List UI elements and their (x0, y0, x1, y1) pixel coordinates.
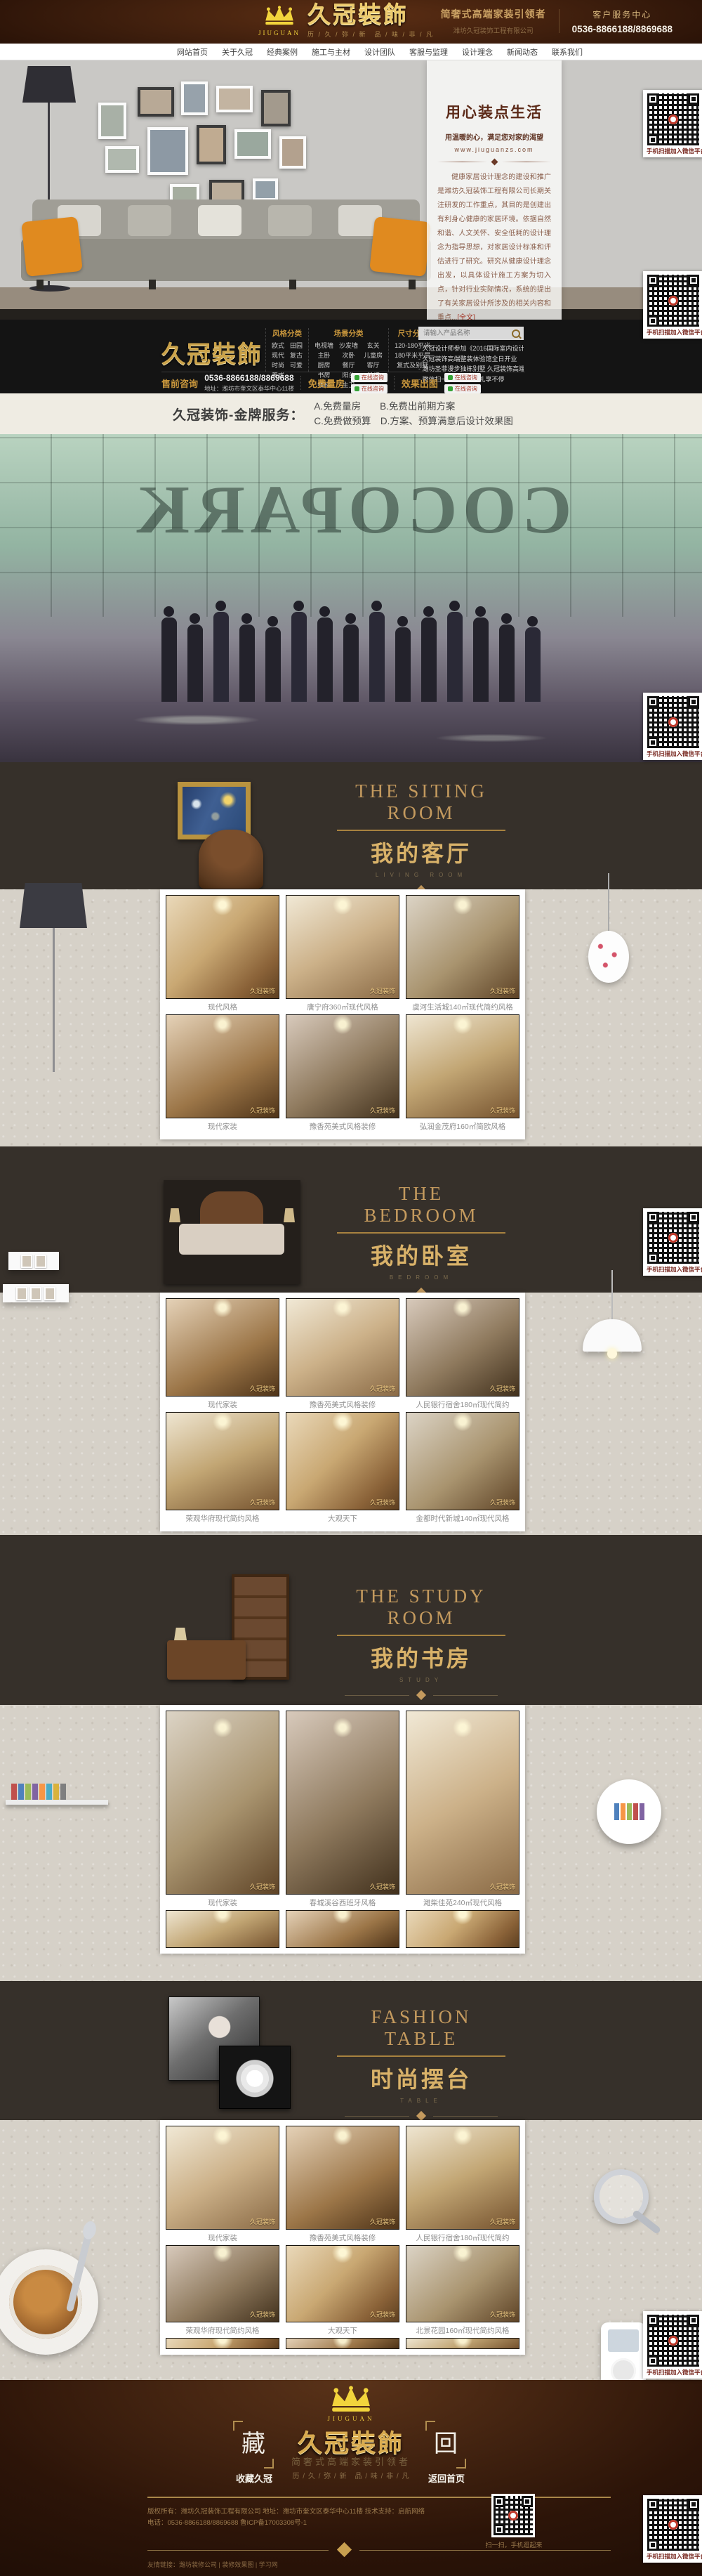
scene-link[interactable]: 次卧 (339, 351, 358, 360)
footer-slogan: 简奢式高端家装引领者 (267, 2454, 435, 2468)
gallery-photo[interactable]: 久冠装饰 (166, 2245, 279, 2322)
news-item[interactable]: 久冠设计师参加《2016国际室内设计趋势解析》 (418, 344, 524, 354)
gallery-photo[interactable]: 久冠装饰 (166, 2126, 279, 2230)
phone-address: 0536-8866188/8869688 地址：潍坊市奎文区泰华中心11楼 (204, 373, 294, 393)
qr-code (647, 275, 699, 327)
footer-brand-en: JIUGUAN (302, 2415, 400, 2422)
photo-caption: 荣观华府现代简约风格 (166, 2325, 279, 2336)
site-header: JIUGUAN 久冠裝飾 历 / 久 / 弥 / 新 品 / 味 / 非 / 凡… (0, 0, 702, 44)
fashion-title-zh: 时尚摆台 (317, 2062, 525, 2094)
photo-caption: 现代家装 (166, 1897, 279, 1908)
chat-icon (448, 386, 453, 391)
gallery-photo[interactable]: 久冠装饰 (166, 1014, 279, 1118)
study-title-en: THE STUDYROOM (317, 1586, 525, 1629)
service-phone: 0536-8866188/8869688 (572, 24, 673, 34)
section-fashion-table: FASHIONTABLE 时尚摆台 TABLE 久冠装饰 久冠装饰 久冠装饰 现… (0, 1981, 702, 2380)
style-link[interactable]: 复古 (290, 351, 303, 360)
collect-seal[interactable]: 藏 (237, 2424, 270, 2466)
footer-qr-caption: 扫一扫，手机逛起来 (466, 2540, 562, 2549)
qr-code (647, 2315, 699, 2367)
nav-item-construction[interactable]: 施工与主材 (305, 46, 357, 58)
photo-caption: 荣观华府现代简约风格 (166, 1513, 279, 1524)
contact-address: 地址：潍坊市奎文区泰华中心11楼 (204, 384, 294, 393)
brand-tagline: 历 / 久 / 弥 / 新 品 / 味 / 非 / 凡 (307, 30, 434, 39)
gallery-photo[interactable]: 久冠装饰 (406, 895, 519, 999)
footer-divider (147, 2497, 611, 2498)
gallery-photo[interactable]: 久冠装饰 (286, 1014, 399, 1118)
collect-button[interactable]: 收藏久冠 (222, 2471, 286, 2485)
gallery-photo[interactable]: 久冠装饰 (166, 1298, 279, 1397)
photo-frame (279, 136, 306, 169)
wechat-qr-widget: 手机扫描加入微信平台 (643, 693, 702, 760)
category-scene: 场景分类 电视墙 沙发墙 玄关 主卧 次卧 儿童房 厨房 餐厅 客厅 书房 阳台… (308, 328, 388, 372)
friend-links[interactable]: 友情链接：潍坊装修公司 | 装修效果图 | 学习网 (147, 2560, 278, 2569)
nav-item-concept[interactable]: 设计理念 (455, 46, 500, 58)
bedroom-title-zh: 我的卧室 (317, 1238, 525, 1271)
wechat-qr-widget: 手机扫描加入微信平台 (643, 2311, 702, 2379)
hero-banner: 用心装点生活 用温暖的心，满足您对家的渴望 www.jiuguanzs.com … (0, 60, 702, 320)
gallery-photo[interactable]: 久冠装饰 (406, 1014, 519, 1118)
photo-caption: 北景花园160㎡现代简约风格 (406, 2325, 519, 2336)
fashion-subtitle: TABLE (317, 2098, 525, 2104)
style-link[interactable]: 可爱 (290, 360, 303, 370)
gallery-photo[interactable]: 久冠装饰 (166, 1412, 279, 1510)
header-company: 潍坊久冠装饰工程有限公司 (441, 25, 546, 35)
read-more-link[interactable]: [全文] (457, 314, 475, 320)
hero-divider (437, 159, 551, 164)
wechat-qr-widget: 手机扫描加入微信平台 (643, 90, 702, 157)
scene-link[interactable]: 电视墙 (314, 341, 333, 350)
product-search (418, 327, 524, 340)
living-title-zh: 我的客厅 (317, 836, 525, 868)
gallery-photo[interactable]: 久冠装饰 (406, 1412, 519, 1510)
gallery-photo[interactable] (166, 2338, 279, 2349)
scene-link[interactable]: 儿童房 (364, 351, 383, 360)
plaza-ground (0, 702, 702, 762)
contact-logo: 久冠裝飾 (161, 335, 263, 370)
gallery-photo[interactable]: 久冠装饰 (286, 1412, 399, 1510)
photo-frame (147, 127, 188, 175)
render-output-label: 效果出图 (402, 377, 438, 390)
photo-caption: 唐宁府360㎡现代风格 (286, 1002, 399, 1012)
wechat-qr-widget: 手机扫描加入微信平台 (643, 2495, 702, 2563)
qr-code (647, 1212, 699, 1264)
footer-ornament-line (147, 2550, 329, 2551)
gallery-photo[interactable] (286, 2338, 399, 2349)
brand-logo[interactable]: JIUGUAN 久冠裝飾 历 / 久 / 弥 / 新 品 / 味 / 非 / 凡 (258, 4, 434, 39)
pendant-lamp-decor (588, 873, 629, 983)
chat-icon (355, 386, 359, 391)
nav-item-contact[interactable]: 联系我们 (545, 46, 590, 58)
search-input[interactable] (422, 329, 509, 338)
bedroom-subtitle: BEDROOM (317, 1274, 525, 1281)
footer-qr-code (491, 2494, 535, 2537)
scene-link[interactable]: 餐厅 (339, 360, 358, 370)
gallery-photo[interactable]: 久冠装饰 (286, 2245, 399, 2322)
style-link[interactable]: 现代 (272, 351, 284, 360)
nav-item-designers[interactable]: 设计团队 (357, 46, 402, 58)
category-columns: 风格分类 欧式 田园 现代 复古 时尚 可爱 美式 场景分类 电视墙 沙发墙 玄… (265, 328, 436, 372)
photo-frame (216, 86, 253, 112)
footer-diamond-icon (337, 2542, 352, 2557)
service-center-block: 客户服务中心 0536-8866188/8869688 (572, 8, 673, 34)
photo-caption: 人民银行宿舍180㎡现代简约 (406, 2232, 519, 2243)
wechat-qr-widget: 手机扫描加入微信平台 (643, 271, 702, 339)
photo-frame (197, 125, 226, 164)
photo-caption: 豫香苑美式风格装修 (286, 2232, 399, 2243)
photo-caption: 大观天下 (286, 2325, 399, 2336)
scene-link[interactable]: 厨房 (314, 360, 333, 370)
gallery-photo[interactable]: 久冠装饰 (286, 1298, 399, 1397)
floor-lamp-decor (20, 883, 87, 1072)
gallery-photo[interactable]: 久冠装饰 (406, 2245, 519, 2322)
qr-code (647, 93, 699, 145)
scene-link[interactable]: 主卧 (314, 351, 333, 360)
desk-decor (167, 1640, 246, 1680)
online-consult-button[interactable]: 在线咨询 (444, 373, 481, 382)
team-members (0, 612, 702, 710)
photo-frame (98, 103, 126, 139)
gallery-photo[interactable]: 久冠装饰 (406, 2126, 519, 2230)
search-icon[interactable] (512, 329, 520, 338)
hero-subtitle: 用温暖的心，满足您对家的渴望 (437, 131, 551, 142)
brand-name-zh: 久冠裝飾 (307, 4, 434, 27)
chat-icon (448, 375, 453, 380)
gallery-photo[interactable]: 久冠装饰 (166, 1711, 279, 1895)
study-header-band: THE STUDYROOM 我的书房 STUDY (0, 1535, 702, 1705)
qr-code (647, 696, 699, 748)
photo-caption: 潍柴佳苑240㎡现代风格 (406, 1897, 519, 1908)
photo-caption: 虞河生活城140㎡现代简约风格 (406, 1002, 519, 1012)
main-nav: 网站首页 关于久冠 经典案例 施工与主材 设计团队 客服与监理 设计理念 新闻动… (0, 44, 702, 60)
nav-item-about[interactable]: 关于久冠 (215, 46, 260, 58)
photo-caption: 豫香苑美式风格装修 (286, 1121, 399, 1132)
gallery-photo[interactable] (406, 2338, 519, 2349)
back-home-seal[interactable]: 回 (430, 2424, 462, 2466)
ornament-divider (317, 2112, 525, 2119)
book-shelf-decor (6, 1774, 108, 1805)
coffee-cup-decor (0, 2249, 98, 2355)
gallery-photo[interactable] (166, 1910, 279, 1948)
bedroom-title-en: THEBEDROOM (317, 1183, 525, 1227)
header-slogan: 简奢式高端家装引领者 (441, 7, 546, 21)
style-link[interactable]: 欧式 (272, 341, 284, 350)
hero-title: 用心装点生活 (437, 101, 551, 122)
fashion-title-en: FASHIONTABLE (317, 2006, 525, 2050)
section-bedroom: THEBEDROOM 我的卧室 BEDROOM 久冠装饰 久冠装饰 久冠装饰 现… (0, 1146, 702, 1535)
photo-frame (105, 146, 139, 173)
back-home-button[interactable]: 返回首页 (414, 2471, 479, 2485)
living-header-band: THE SITINGROOM 我的客厅 LIVING ROOM (0, 762, 702, 889)
wall-shelf-decor (8, 1252, 59, 1270)
hero-floor-shadow (0, 309, 702, 320)
copyright-line-1: 版权所有：潍坊久冠装饰工程有限公司 地址：潍坊市奎文区泰华中心11楼 技术支持：… (147, 2506, 425, 2518)
study-title-zh: 我的书房 (317, 1641, 525, 1673)
qr-code (647, 2499, 699, 2551)
photo-frame (181, 81, 208, 115)
gallery-photo[interactable]: 久冠装饰 (286, 895, 399, 999)
gallery-photo[interactable] (406, 1910, 519, 1948)
floor-lamp-shade (22, 66, 76, 103)
header-divider (559, 9, 559, 33)
photo-frame (261, 90, 291, 126)
nav-item-news[interactable]: 新闻动态 (500, 46, 545, 58)
brand-name-en: JIUGUAN (258, 30, 300, 37)
magnifier-decor (594, 2169, 663, 2225)
hero-overlay-panel: 用心装点生活 用温暖的心，满足您对家的渴望 www.jiuguanzs.com … (427, 60, 562, 320)
team-photo: COCOPARK (0, 434, 702, 762)
section-living-room: THE SITINGROOM 我的客厅 LIVING ROOM 久冠装饰 久冠装… (0, 762, 702, 1146)
bed-decor (164, 1180, 300, 1284)
service-center-label: 客户服务中心 (572, 8, 673, 20)
gold-service-bar: 久冠装饰-金牌服务： A.免费量房 B.免费出前期方案 C.免费做预算 D.方案… (0, 393, 702, 434)
nav-item-supervision[interactable]: 客服与监理 (402, 46, 455, 58)
wechat-qr-widget: 手机扫描加入微信平台 (643, 1208, 702, 1276)
online-consult-button[interactable]: 在线咨询 (351, 384, 388, 393)
photo-caption: 人民银行宿舍180㎡现代简约 (406, 1399, 519, 1410)
online-consult-button[interactable]: 在线咨询 (444, 384, 481, 393)
gallery-photo[interactable] (286, 1910, 399, 1948)
photo-frame (138, 87, 174, 117)
hero-website: www.jiuguanzs.com (437, 146, 551, 153)
category-style: 风格分类 欧式 田园 现代 复古 时尚 可爱 美式 (265, 328, 308, 372)
gallery-photo[interactable]: 久冠装饰 (286, 2126, 399, 2230)
style-link[interactable]: 时尚 (272, 360, 284, 370)
page: JIUGUAN 久冠裝飾 历 / 久 / 弥 / 新 品 / 味 / 非 / 凡… (0, 0, 702, 2576)
header-slogan-block: 简奢式高端家装引领者 潍坊久冠装饰工程有限公司 (441, 7, 546, 35)
photo-caption: 现代家装 (166, 2232, 279, 2243)
rose-photo-decor (219, 2046, 291, 2109)
free-measure-label: 免费量房 (308, 377, 345, 390)
photo-caption: 弘润金茂府160㎡简欧风格 (406, 1121, 519, 1132)
copyright-line-2: 电话：0536-8866188/8869688 鲁ICP备17003308号-1 (147, 2518, 425, 2529)
photo-caption: 现代风格 (166, 1002, 279, 1012)
scene-link[interactable]: 客厅 (364, 360, 383, 370)
photo-frame (253, 178, 278, 201)
chat-icon (355, 375, 359, 380)
news-item[interactable]: 久冠装饰高端整装体验馆全日开业 (418, 354, 524, 365)
contact-bottom-strip: 售前咨询 0536-8866188/8869688 地址：潍坊市奎文区泰华中心1… (161, 372, 525, 393)
photo-caption: 现代家装 (166, 1399, 279, 1410)
scene-link[interactable]: 玄关 (364, 341, 383, 350)
living-title-en: THE SITINGROOM (317, 780, 525, 824)
wall-shelf-decor (3, 1284, 69, 1302)
contact-bar: 久冠裝飾 风格分类 欧式 田园 现代 复古 时尚 可爱 美式 场景分类 电视墙 … (0, 320, 702, 393)
fashion-header-band: FASHIONTABLE 时尚摆台 TABLE (0, 1981, 702, 2120)
hero-paragraph: 健康家居设计理念的建设和推广是潍坊久冠装饰工程有限公司长期关注研发的工作重点，其… (437, 171, 551, 320)
gallery-photo[interactable]: 久冠装饰 (166, 895, 279, 999)
gallery-photo[interactable]: 久冠装饰 (406, 1298, 519, 1397)
section-study-room: THE STUDYROOM 我的书房 STUDY 久冠装饰 久冠装饰 久冠装饰 … (0, 1535, 702, 1981)
ornament-divider (317, 1692, 525, 1699)
photo-caption: 春城溪谷西班牙风格 (286, 1897, 399, 1908)
gallery-photo[interactable]: 久冠装饰 (286, 1711, 399, 1895)
style-link[interactable]: 田园 (290, 341, 303, 350)
nav-item-home[interactable]: 网站首页 (170, 46, 215, 58)
cocopark-sign: COCOPARK (0, 471, 702, 549)
living-subtitle: LIVING ROOM (317, 872, 525, 878)
presale-label: 售前咨询 (161, 377, 198, 390)
contact-phone: 0536-8866188/8869688 (204, 373, 294, 383)
site-footer: JIUGUAN 久冠裝飾 简奢式高端家装引领者 历 / 久 / 弥 / 新 品 … (0, 2380, 702, 2576)
study-subtitle: STUDY (317, 1677, 525, 1683)
scene-link[interactable]: 沙发墙 (339, 341, 358, 350)
photo-caption: 现代家装 (166, 1121, 279, 1132)
photo-caption: 豫香苑美式风格装修 (286, 1399, 399, 1410)
footer-ornament-line (359, 2550, 611, 2551)
service-line-1: A.免费量房 B.免费出前期方案 (314, 399, 513, 414)
sofa (8, 200, 444, 305)
footer-crown-icon (329, 2386, 373, 2416)
footer-tagline: 历 / 久 / 弥 / 新 品 / 味 / 非 / 凡 (267, 2470, 435, 2480)
photo-caption: 金都时代新城140㎡现代风格 (406, 1513, 519, 1524)
armchair-decor (199, 830, 263, 889)
service-line-2: C.免费做预算 D.方案、预算满意后设计效果图 (314, 414, 513, 429)
crown-icon: JIUGUAN (258, 6, 300, 37)
pendant-dome-decor (583, 1270, 642, 1359)
photo-frame (234, 129, 271, 159)
round-shelf-decor (597, 1779, 661, 1844)
photo-caption: 大观天下 (286, 1513, 399, 1524)
online-consult-button[interactable]: 在线咨询 (351, 373, 388, 382)
gallery-photo[interactable]: 久冠装饰 (406, 1711, 519, 1895)
nav-item-cases[interactable]: 经典案例 (260, 46, 305, 58)
service-title: 久冠装饰-金牌服务： (173, 405, 304, 424)
